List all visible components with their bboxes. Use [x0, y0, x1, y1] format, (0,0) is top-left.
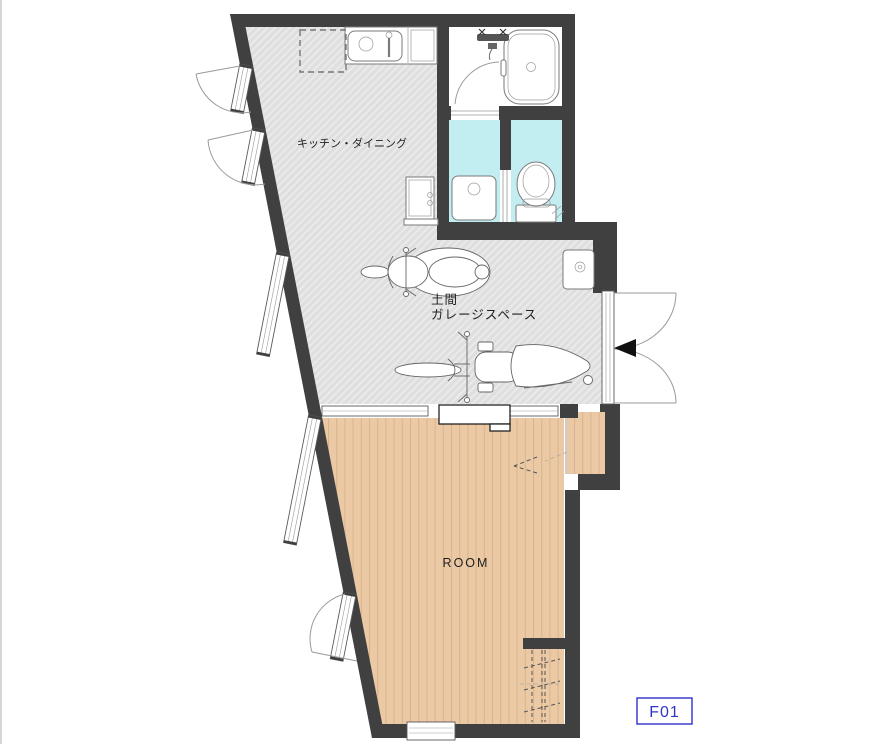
kitchen-counter [345, 27, 437, 64]
washroom-left-wall [437, 120, 449, 225]
right-upper-wall [562, 14, 575, 240]
doma-label: 土間 [431, 293, 458, 307]
washroom-toilet-wall [500, 120, 511, 170]
boundary-right-stub [560, 404, 578, 418]
washing-machine-pan-icon [404, 177, 438, 225]
room-wood-floor [322, 418, 564, 724]
bathtub-icon [501, 30, 559, 104]
window-room [284, 415, 322, 545]
entrance-arrow-icon [614, 339, 636, 357]
bathroom-bottom-wall-left [437, 106, 451, 120]
floor-plan-page: キッチン・ダイニング 土間 ガレージスペース ROOM F01 [0, 0, 871, 744]
kitchen-sink-icon [348, 31, 402, 61]
window-bottom [407, 722, 455, 740]
unit-label-text: F01 [649, 704, 680, 721]
alcove-bottom-wall [578, 474, 620, 490]
alcove-wood-floor [567, 412, 605, 474]
kitchen-bathroom-wall [437, 14, 449, 120]
floor-plan: キッチン・ダイニング 土間 ガレージスペース ROOM F01 [0, 0, 871, 744]
bathroom-bottom-wall-right [499, 106, 575, 120]
washbasin-icon [452, 176, 496, 220]
garage-space-label: ガレージスペース [431, 308, 537, 322]
kitchen-dining-label: キッチン・ダイニング [297, 136, 407, 150]
utility-sink-icon [563, 250, 594, 289]
sanitary-bottom-wall [437, 222, 617, 240]
bottom-wall [370, 724, 580, 738]
room-right-wall [565, 490, 580, 724]
window-garage [257, 252, 290, 357]
entrance-bottom-stub [600, 404, 620, 412]
entrance-double-door [602, 291, 676, 404]
top-wall [230, 14, 575, 27]
room-inner-stub [523, 638, 565, 649]
room-label: ROOM [443, 556, 490, 570]
unit-label[interactable]: F01 [637, 698, 692, 724]
